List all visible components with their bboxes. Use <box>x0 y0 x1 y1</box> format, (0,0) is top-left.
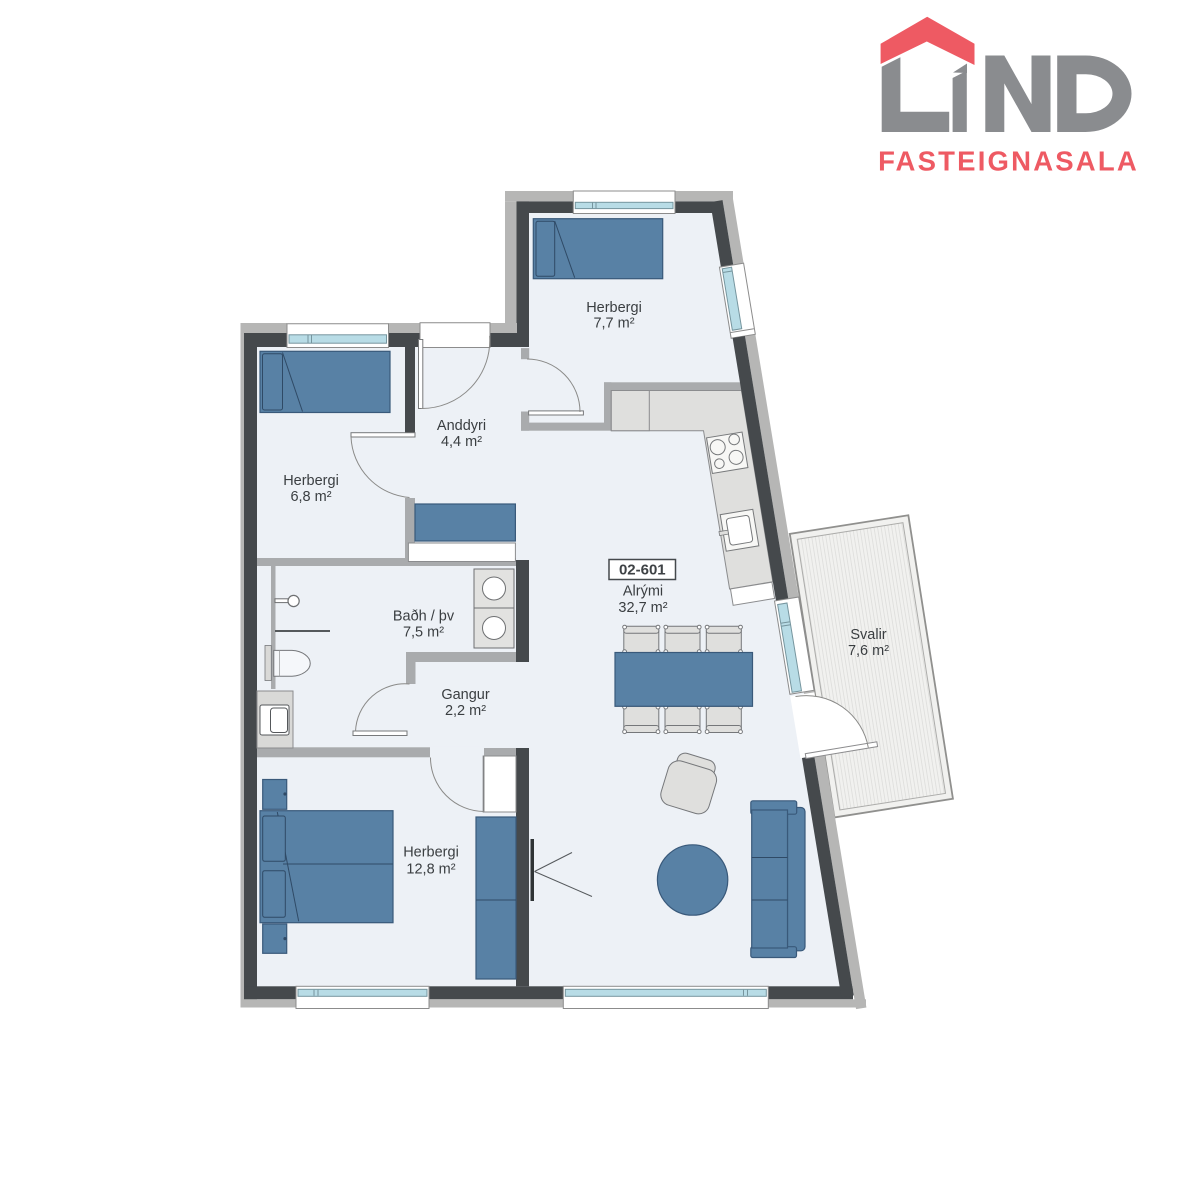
svg-text:Anddyri: Anddyri <box>437 418 486 434</box>
svg-text:32,7 m²: 32,7 m² <box>618 600 667 616</box>
svg-text:6,8 m²: 6,8 m² <box>290 489 331 505</box>
svg-text:2,2 m²: 2,2 m² <box>445 703 486 719</box>
svg-text:FASTEIGNASALA: FASTEIGNASALA <box>878 146 1139 177</box>
svg-text:12,8 m²: 12,8 m² <box>406 862 455 878</box>
svg-text:02-601: 02-601 <box>619 562 666 579</box>
svg-text:Herbergi: Herbergi <box>403 845 459 861</box>
svg-text:7,6 m²: 7,6 m² <box>848 643 889 659</box>
svg-text:4,4 m²: 4,4 m² <box>441 434 482 450</box>
svg-text:7,5 m²: 7,5 m² <box>403 625 444 641</box>
svg-text:7,7 m²: 7,7 m² <box>593 316 634 332</box>
svg-text:Alrými: Alrými <box>623 584 663 600</box>
svg-text:Herbergi: Herbergi <box>283 473 339 489</box>
svg-text:Baðh / þv: Baðh / þv <box>393 609 455 625</box>
svg-text:Herbergi: Herbergi <box>586 300 642 316</box>
svg-text:Svalir: Svalir <box>850 627 886 643</box>
svg-text:Gangur: Gangur <box>441 687 490 703</box>
